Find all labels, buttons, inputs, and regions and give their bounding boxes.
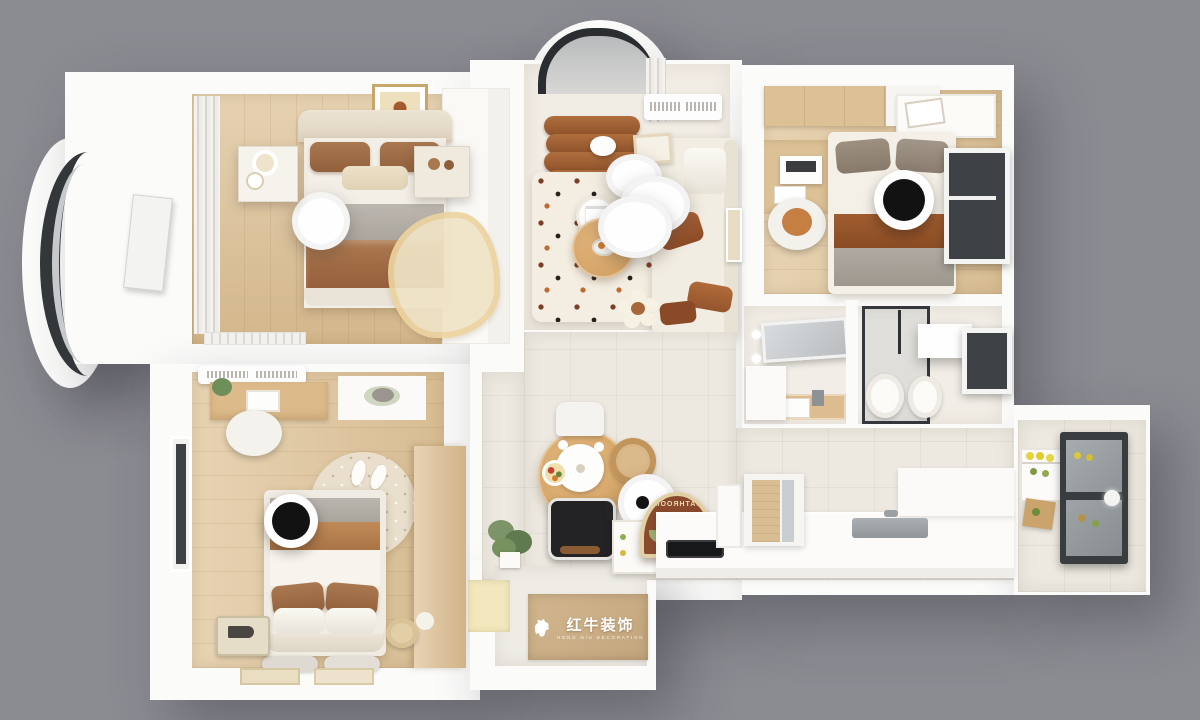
brand-doormat: 红牛装饰 HONG NIU DECORATION (528, 594, 648, 660)
bath-storage-cabinet (746, 366, 786, 420)
kitchen-sink (852, 518, 928, 538)
nightstand-right (414, 146, 470, 198)
dining-chair-white (556, 402, 604, 436)
plant-pot (500, 552, 520, 568)
bed2-blanket-gray (834, 248, 954, 286)
shower-column (898, 310, 901, 354)
fridge-glass-bottom (1066, 500, 1122, 556)
bear-tray-dot (576, 464, 585, 473)
bed3-pillow-white-1 (274, 608, 324, 634)
armchair-tube-1 (544, 116, 640, 136)
bedroom3-wardrobe (414, 446, 466, 668)
brand-logo: 红牛装饰 HONG NIU DECORATION (532, 614, 645, 640)
bedroom2-ring-lamp-core (883, 179, 925, 221)
fridge-shelf-line (1022, 462, 1060, 464)
leaning-frame-2 (726, 208, 742, 262)
pale-yellow-mat (468, 580, 510, 632)
petal (624, 314, 640, 328)
vase-1 (428, 158, 440, 170)
flower-pouf (618, 290, 658, 328)
master-ceiling-lamp (292, 192, 350, 250)
bay-glass-highlight (52, 164, 117, 364)
black-chair-wood-rail (560, 546, 600, 554)
master-pillow-center (342, 166, 408, 190)
living-air-conditioner (644, 94, 722, 120)
bed3-sheet-white (270, 550, 380, 586)
soap-dispenser (812, 390, 824, 406)
bidet (908, 376, 942, 418)
fridge-glass-top (1066, 440, 1122, 492)
pantry-door-wood-panel (752, 480, 780, 542)
sconce-bulb-2 (752, 354, 761, 363)
yarn-ball (416, 612, 434, 630)
kitchen-island-step (898, 468, 1014, 516)
fridge-food-2 (1086, 454, 1093, 461)
sink-faucet (884, 510, 898, 517)
master-radiator (204, 332, 306, 345)
bathroom-rug-text: BATHROOM (644, 501, 710, 508)
nightstand-tray (246, 172, 264, 190)
bedroom3-pouf (386, 618, 418, 648)
bed2-pillow-right (895, 138, 949, 174)
bedroom2-wardrobe (764, 86, 886, 126)
cabinet-knob-2 (620, 550, 626, 556)
bedroom2-window-bar (948, 196, 996, 200)
lemon-2 (1036, 452, 1044, 460)
veg-2 (1042, 470, 1049, 477)
bath-partition (846, 300, 858, 426)
fridge-food-1 (1074, 452, 1081, 459)
fish-artwork (228, 626, 254, 638)
brand-text-block: 红牛装饰 HONG NIU DECORATION (557, 614, 645, 640)
bed3-pillow-white-2 (326, 608, 376, 634)
fridge-food-3 (1078, 514, 1086, 522)
cloud-lamp-3 (598, 196, 672, 258)
pouf-center (631, 302, 645, 315)
fridge-handle-light (1104, 490, 1120, 506)
floorplan-scene: BATHROOM (0, 0, 1200, 720)
sofa-cushion-white (684, 148, 726, 194)
bull-icon (532, 616, 552, 638)
sofa-pillow-brown-3 (659, 300, 697, 326)
armchair-side-tray (590, 136, 616, 156)
sleeping-cat (372, 388, 394, 402)
kitchen-tall-cabinet (716, 484, 742, 548)
bedroom2-chair-seat (782, 208, 812, 236)
fridge-food-4 (1092, 520, 1099, 527)
bed3-headboard (266, 634, 384, 652)
vase-2 (444, 160, 454, 170)
petal (640, 312, 656, 326)
bedroom3-window-glass (176, 444, 186, 564)
veg-on-board (1032, 508, 1040, 516)
sconce-bulb-1 (752, 330, 761, 339)
brand-name-en: HONG NIU DECORATION (557, 635, 645, 640)
cabinet-knob-1 (620, 534, 626, 540)
bedroom2-window (944, 148, 1010, 264)
toilet (866, 374, 904, 418)
bedroom3-chair (226, 410, 282, 456)
bedroom3-plant (212, 378, 232, 396)
laptop-keys (786, 161, 816, 172)
vanity-mirror (761, 317, 850, 363)
bed2-pillow-left (835, 138, 892, 175)
veg-1 (1030, 468, 1037, 475)
organic-bedside-rug (388, 212, 500, 338)
bedroom3-ring-lamp-core (272, 502, 310, 540)
shelf-tray (904, 97, 945, 128)
pantry-door-glass (782, 480, 794, 542)
lemon-1 (1026, 452, 1034, 460)
lemon-3 (1046, 454, 1054, 462)
master-curtains (194, 96, 220, 334)
bathroom-window (962, 328, 1012, 394)
door-mat-1 (240, 668, 300, 685)
food-plate (542, 460, 568, 486)
door-mat-2 (314, 668, 374, 685)
brand-name-cn: 红牛装饰 (566, 614, 634, 635)
bedroom3-book (246, 390, 280, 412)
